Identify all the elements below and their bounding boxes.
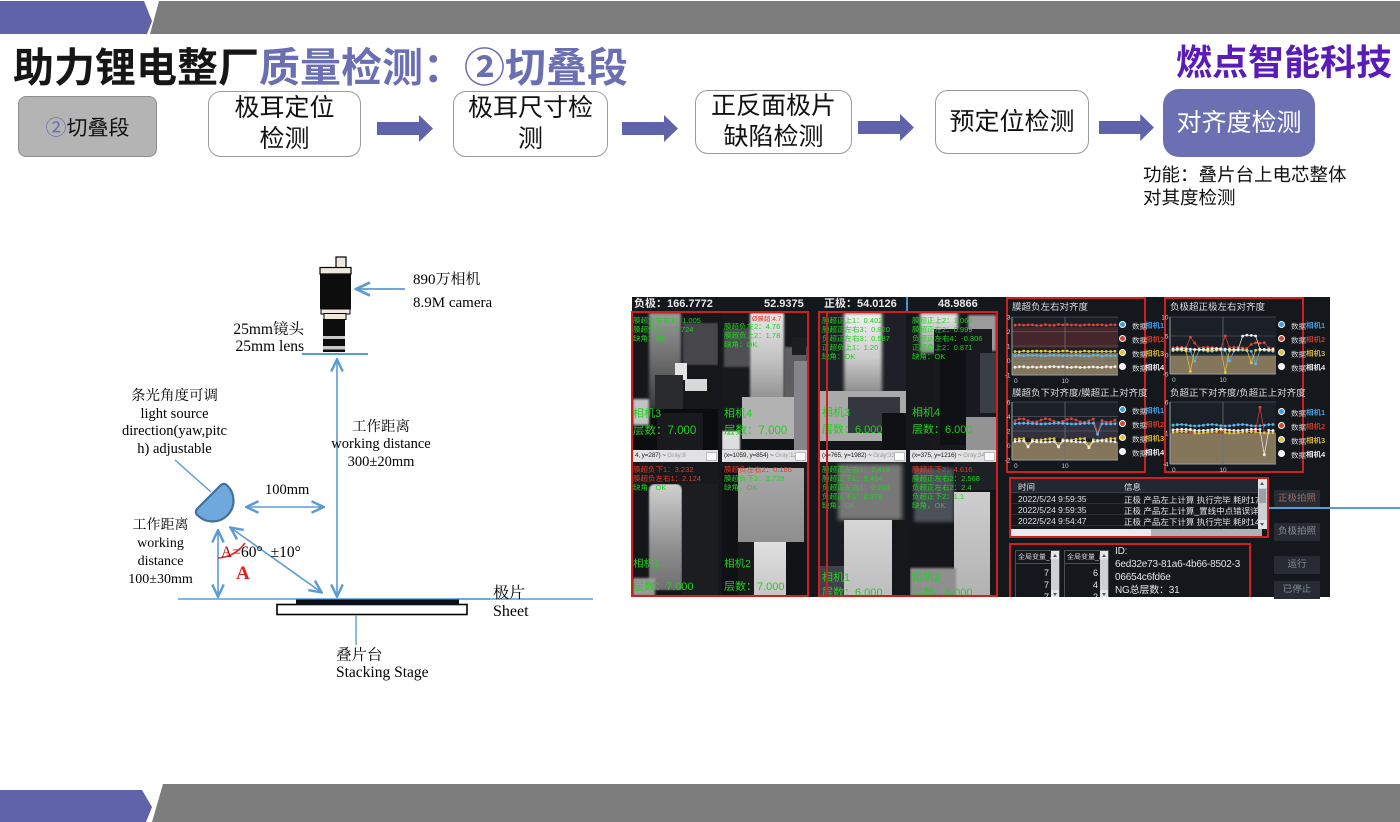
svg-text:5: 5 bbox=[1165, 334, 1169, 341]
svg-text:1: 1 bbox=[1007, 344, 1011, 351]
svg-text:4: 4 bbox=[1007, 414, 1011, 421]
svg-text:10: 10 bbox=[1061, 378, 1069, 385]
svg-text:0: 0 bbox=[1007, 358, 1011, 365]
svg-text:10: 10 bbox=[1161, 315, 1169, 322]
svg-text:-5: -5 bbox=[1163, 372, 1169, 379]
svg-text:0: 0 bbox=[1172, 467, 1176, 473]
svg-text:6: 6 bbox=[1007, 400, 1011, 407]
svg-text:2: 2 bbox=[1007, 429, 1011, 436]
svg-text:2: 2 bbox=[1007, 329, 1011, 336]
svg-text:0: 0 bbox=[1165, 353, 1169, 360]
svg-text:10: 10 bbox=[1061, 463, 1069, 470]
svg-text:6: 6 bbox=[1165, 400, 1169, 407]
svg-text:3: 3 bbox=[1007, 315, 1011, 322]
svg-text:0: 0 bbox=[1007, 443, 1011, 450]
svg-text:-2: -2 bbox=[1005, 458, 1011, 465]
svg-text:1: 1 bbox=[1165, 431, 1169, 438]
svg-text:0: 0 bbox=[1014, 378, 1018, 385]
svg-text:0: 0 bbox=[1172, 377, 1176, 384]
svg-text:-4: -4 bbox=[1163, 462, 1169, 469]
svg-text:0: 0 bbox=[1014, 463, 1018, 470]
svg-text:-1: -1 bbox=[1005, 373, 1011, 380]
svg-text:10: 10 bbox=[1219, 377, 1227, 384]
svg-text:10: 10 bbox=[1219, 467, 1227, 473]
